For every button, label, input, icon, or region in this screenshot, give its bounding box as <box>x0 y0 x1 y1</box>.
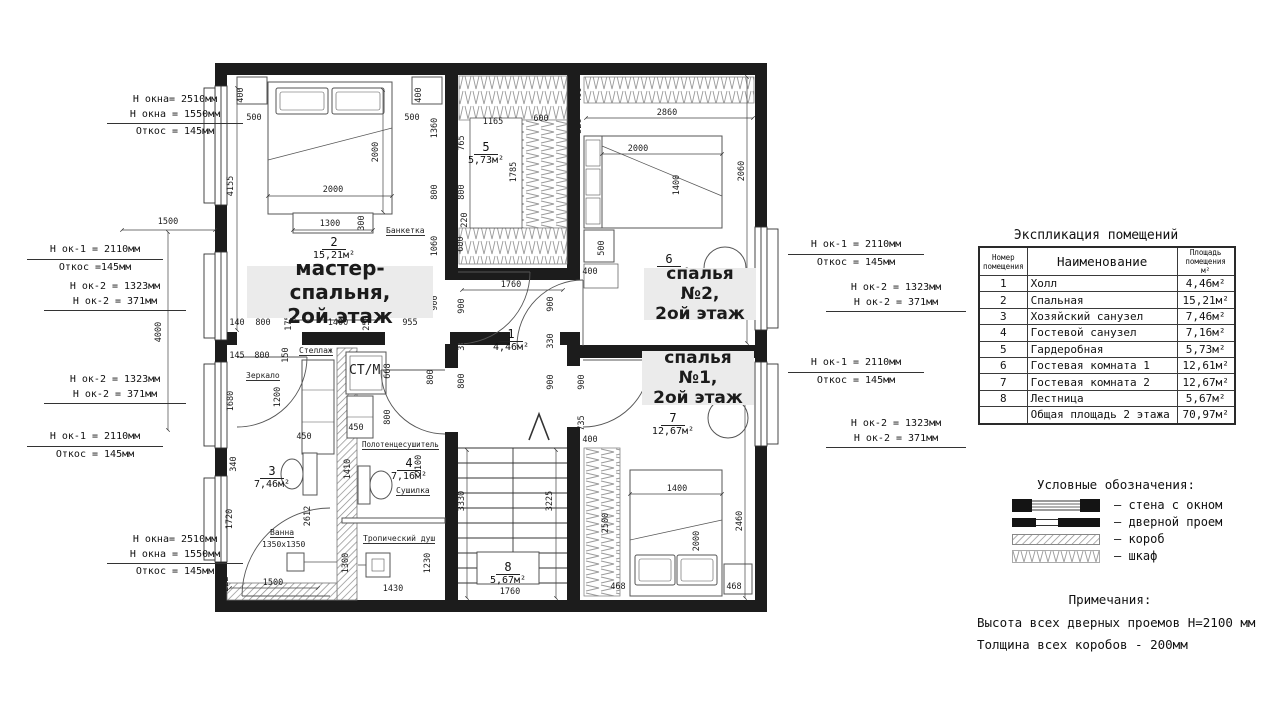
notes: Высота всех дверных проемов Н=2100 мм То… <box>977 612 1255 656</box>
dim-label: 2000 <box>323 185 343 195</box>
dim-label: 500 <box>597 240 607 255</box>
table-row: 5Гардеробная5,73м² <box>979 341 1235 357</box>
table-cell: 12,67м² <box>1177 374 1235 390</box>
table-cell: 5,73м² <box>1177 341 1235 357</box>
dim-label: 900 <box>457 298 467 313</box>
bath-size-label: 1350x1350 <box>262 540 305 549</box>
note-line: Высота всех дверных проемов Н=2100 мм <box>977 612 1255 634</box>
table-cell: 5 <box>979 341 1027 357</box>
dim-label: 2000 <box>628 144 648 154</box>
window-note-right-1: Н ок-1 = 2110мм Откос = 145мм <box>788 238 924 270</box>
dim-label: 2460 <box>735 511 745 531</box>
stairs-up-arrow <box>529 414 549 440</box>
dim-label: 1400 <box>672 175 682 195</box>
dim-label: 4000 <box>154 322 164 342</box>
room-tag-bath4: 4 7,16м² <box>379 452 439 482</box>
table-cell: 2 <box>979 292 1027 308</box>
table-row: 8Лестница5,67м² <box>979 390 1235 406</box>
legend-item-duct: – короб <box>1012 531 1222 547</box>
table-cell: Общая площадь 2 этажа <box>1027 407 1177 424</box>
dim-label: 1500 <box>158 217 178 227</box>
table-cell: Лестница <box>1027 390 1177 406</box>
dim-label: 500 <box>246 113 261 123</box>
table-cell: Холл <box>1027 276 1177 292</box>
room-tag-hall: 1 4,46м² <box>481 323 541 353</box>
dim-label: 800 <box>426 369 436 384</box>
bench-label: Банкетка <box>386 226 425 236</box>
table-cell: 1 <box>979 276 1027 292</box>
wardrobe-icon <box>1012 550 1100 563</box>
dim-label: 800 <box>457 373 467 388</box>
legend-title: Условные обозначения: <box>1010 477 1222 492</box>
dim-label: 1500 <box>263 578 283 588</box>
window-note-right-4: Н ок-2 = 1323ммН ок-2 = 371мм <box>826 417 966 449</box>
room-label-bedroom2: спалья №2, 2ой этаж <box>644 268 756 320</box>
dim-label: 1680 <box>226 391 236 411</box>
dim-label: 500 <box>404 113 419 123</box>
window-note-left-2: Н ок-2 = 1323ммН ок-2 = 371мм <box>44 280 186 312</box>
table-cell: 4,46м² <box>1177 276 1235 292</box>
dim-label: 1060 <box>430 236 440 256</box>
dim-label: 1360 <box>430 118 440 138</box>
dim-label: 140 <box>229 318 244 328</box>
dim-label: 1760 <box>500 587 520 597</box>
table-cell: Хозяйский санузел <box>1027 308 1177 324</box>
dim-label: 330 <box>457 335 467 350</box>
dim-label: 900 <box>546 296 556 311</box>
notes-title: Примечания: <box>1010 592 1210 607</box>
dim-label: 2860 <box>657 108 677 118</box>
dim-label: 1300 <box>341 553 351 573</box>
room-tag-stairs: 8 5,67м² <box>478 556 538 586</box>
shower-label: Тропический душ <box>363 534 435 544</box>
legend: – стена с окном – дверной проем – короб <box>1012 497 1222 565</box>
bath-label: Ванна <box>270 528 294 538</box>
legend-item-door-opening: – дверной проем <box>1012 514 1222 530</box>
dryer-label: Сушилка <box>396 486 430 496</box>
dim-label: 3225 <box>545 491 555 511</box>
dim-label: 900 <box>546 374 556 389</box>
dim-label: 400 <box>582 267 597 277</box>
dim-label: 450 <box>296 432 311 442</box>
table-cell: 5,67м² <box>1177 390 1235 406</box>
table-cell <box>979 407 1027 424</box>
table-cell: 7,16м² <box>1177 325 1235 341</box>
dim-label: 1410 <box>343 459 353 479</box>
dim-label: 900 <box>577 374 587 389</box>
washer-label: СТ/М <box>349 363 380 378</box>
dim-label: 800 <box>254 351 269 361</box>
table-cell: 6 <box>979 357 1027 373</box>
dim-label: 2612 <box>303 506 313 526</box>
duct-icon <box>1012 533 1100 546</box>
dim-label: 2000 <box>692 531 702 551</box>
dim-label: 1300 <box>320 219 340 229</box>
dim-label: 4155 <box>226 176 236 196</box>
dim-label: 800 <box>383 409 393 424</box>
room-label-bedroom1: спалья №1, 2ой этаж <box>642 351 754 405</box>
col-header-number: Номер помещения <box>979 247 1027 276</box>
dim-label: 668 <box>383 363 393 378</box>
dim-label: 400 <box>574 87 584 102</box>
explication-title: Экспликация помещений <box>978 228 1214 243</box>
dim-label: 468 <box>726 582 741 592</box>
table-cell: 15,21м² <box>1177 292 1235 308</box>
dim-label: 300 <box>357 215 367 230</box>
table-cell: Гардеробная <box>1027 341 1177 357</box>
door-opening-icon <box>1012 516 1100 529</box>
table-row: 2Спальная15,21м² <box>979 292 1235 308</box>
table-row: 7Гостевая комната 212,67м² <box>979 374 1235 390</box>
dim-label: 400 <box>414 87 424 102</box>
dim-label: 2060 <box>737 161 747 181</box>
dim-label: 1760 <box>501 280 521 290</box>
col-header-name: Наименование <box>1027 247 1177 276</box>
table-cell: Гостевой санузел <box>1027 325 1177 341</box>
dim-label: 1165 <box>483 117 503 127</box>
window-note-left-1: Н ок-1 = 2110мм Откос =145мм <box>27 243 163 275</box>
shelf-label: Стеллаж <box>299 346 333 356</box>
window-note-left-3: Н ок-2 = 1323ммН ок-2 = 371мм <box>44 373 186 405</box>
table-cell: 4 <box>979 325 1027 341</box>
dim-label: 600 <box>533 114 548 124</box>
dim-label: 800 <box>430 184 440 199</box>
dim-label: 526 <box>574 118 584 133</box>
mirror-label: Зеркало <box>246 371 280 381</box>
dim-label: 220 <box>460 212 470 227</box>
table-cell: Гостевая комната 2 <box>1027 374 1177 390</box>
window-note-bottom-left: Н окна= 2510ммН окна = 1550мм Откос = 14… <box>107 533 243 580</box>
explication-table: Номер помещения Наименование Площадь пом… <box>978 246 1236 425</box>
note-line: Толщина всех коробов - 200мм <box>977 634 1255 656</box>
window-note-right-3: Н ок-1 = 2110мм Откос = 145мм <box>788 356 924 388</box>
dim-label: 450 <box>348 423 363 433</box>
table-cell: 7 <box>979 374 1027 390</box>
table-row: 1Холл4,46м² <box>979 276 1235 292</box>
legend-item-wardrobe: – шкаф <box>1012 548 1222 564</box>
room-tag-wardrobe: 5 5,73м² <box>456 136 516 166</box>
dim-label: 400 <box>582 435 597 445</box>
table-cell: 3 <box>979 308 1027 324</box>
dim-label: 735 <box>577 415 587 430</box>
window-note-right-2: Н ок-2 = 1323ммН ок-2 = 371мм <box>826 281 966 313</box>
window-note-top-left: Н окна= 2510ммН окна = 1550мм Откос = 14… <box>107 93 243 140</box>
table-cell: 7,46м² <box>1177 308 1235 324</box>
table-cell: 12,61м² <box>1177 357 1235 373</box>
table-cell: 70,97м² <box>1177 407 1235 424</box>
dim-label: 2500 <box>601 513 611 533</box>
dim-label: 145 <box>229 351 244 361</box>
dim-label: 150 <box>281 347 291 362</box>
wall-with-window-icon <box>1012 499 1100 512</box>
table-cell: 8 <box>979 390 1027 406</box>
room-label-master: мастер-спальня, 2ой этаж <box>247 266 433 318</box>
table-cell: Гостевая комната 1 <box>1027 357 1177 373</box>
dim-label: 1720 <box>225 509 235 529</box>
dim-label: 468 <box>610 582 625 592</box>
table-row: 6Гостевая комната 112,61м² <box>979 357 1235 373</box>
window-note-left-4: Н ок-1 = 2110мм Откос = 145мм <box>27 430 163 462</box>
explication-table-body: 1Холл4,46м²2Спальная15,21м²3Хозяйский са… <box>979 276 1235 424</box>
dim-label: 1230 <box>423 553 433 573</box>
room-tag-bedroom1: 7 12,67м² <box>643 407 703 437</box>
towel-dryer-label: Полотенцесушитель <box>362 440 439 450</box>
dim-label: 2000 <box>371 142 381 162</box>
floor-plan-page: 1500400040050040050041552000200013003001… <box>0 0 1276 703</box>
table-row: 3Хозяйский санузел7,46м² <box>979 308 1235 324</box>
table-row: 4Гостевой санузел7,16м² <box>979 325 1235 341</box>
legend-item-window-wall: – стена с окном <box>1012 497 1222 513</box>
dim-label: 1430 <box>383 584 403 594</box>
dim-label: 3330 <box>457 491 467 511</box>
dim-label: 800 <box>457 184 467 199</box>
dim-label: 1200 <box>273 387 283 407</box>
dim-label: 600 <box>456 236 466 251</box>
table-row: Общая площадь 2 этажа70,97м² <box>979 407 1235 424</box>
dim-label: 330 <box>546 333 556 348</box>
col-header-area: Площадь помещения м² <box>1177 247 1235 276</box>
table-cell: Спальная <box>1027 292 1177 308</box>
dim-label: 340 <box>229 456 239 471</box>
dim-label: 1400 <box>667 484 687 494</box>
room-tag-bath3: 3 7,46м² <box>242 460 302 490</box>
